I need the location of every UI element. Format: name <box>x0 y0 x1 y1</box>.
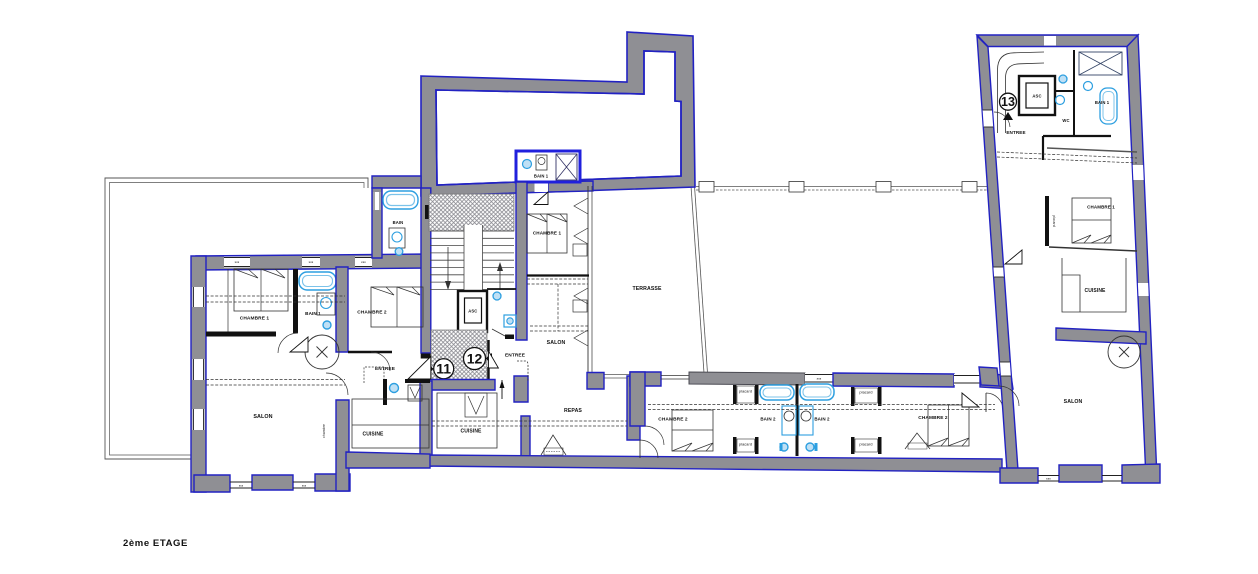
svg-text:13: 13 <box>1001 95 1015 109</box>
svg-text:xxx: xxx <box>309 261 314 264</box>
svg-text:xxx: xxx <box>235 261 240 264</box>
svg-text:BAIN: BAIN <box>393 220 404 225</box>
svg-text:CUISINE: CUISINE <box>461 429 483 435</box>
svg-text:2ème ETAGE: 2ème ETAGE <box>123 538 188 549</box>
svg-text:placard: placard <box>1052 215 1056 226</box>
svg-text:CHAMBRE 2: CHAMBRE 2 <box>918 415 948 421</box>
svg-text:placard: placard <box>739 390 752 394</box>
svg-text:CHAMBRE 1: CHAMBRE 1 <box>240 316 270 322</box>
svg-text:BAIN 2: BAIN 2 <box>760 417 776 422</box>
svg-text:ENTREE: ENTREE <box>505 353 526 359</box>
svg-text:WC: WC <box>1062 118 1069 123</box>
svg-text:xxx: xxx <box>817 378 822 381</box>
svg-text:CHAMBRE 2: CHAMBRE 2 <box>658 417 688 423</box>
svg-text:CHAMBRE 1: CHAMBRE 1 <box>533 231 562 236</box>
svg-text:chambre: chambre <box>322 424 326 438</box>
svg-text:ENTREE: ENTREE <box>375 366 396 372</box>
svg-text:BAIN 1: BAIN 1 <box>534 174 549 179</box>
svg-text:CHAMBRE 2: CHAMBRE 2 <box>357 310 387 316</box>
svg-text:CHAMBRE 1: CHAMBRE 1 <box>1087 205 1115 210</box>
svg-text:xxx: xxx <box>361 261 366 264</box>
svg-text:xxx: xxx <box>239 485 244 488</box>
svg-text:ASC: ASC <box>468 309 477 314</box>
svg-text:BAIN 2: BAIN 2 <box>814 417 830 422</box>
svg-text:placard: placard <box>739 443 752 447</box>
svg-text:TERRASSE: TERRASSE <box>632 286 661 292</box>
svg-text:11: 11 <box>436 361 451 377</box>
svg-text:xxx: xxx <box>1046 478 1051 481</box>
svg-text:BAIN 1: BAIN 1 <box>1095 100 1110 105</box>
svg-text:ENTREE: ENTREE <box>1006 130 1025 135</box>
svg-text:placard: placard <box>859 391 872 395</box>
svg-text:CUISINE: CUISINE <box>1085 288 1107 294</box>
svg-text:CUISINE: CUISINE <box>363 432 385 438</box>
svg-text:xxx: xxx <box>302 485 307 488</box>
svg-text:12: 12 <box>467 351 483 367</box>
svg-text:placard: placard <box>859 443 872 447</box>
svg-text:SALON: SALON <box>253 414 272 420</box>
svg-text:SALON: SALON <box>547 340 566 346</box>
svg-text:SALON: SALON <box>1064 399 1083 405</box>
svg-text:REPAS: REPAS <box>564 408 582 414</box>
svg-text:ASC: ASC <box>1032 94 1041 99</box>
